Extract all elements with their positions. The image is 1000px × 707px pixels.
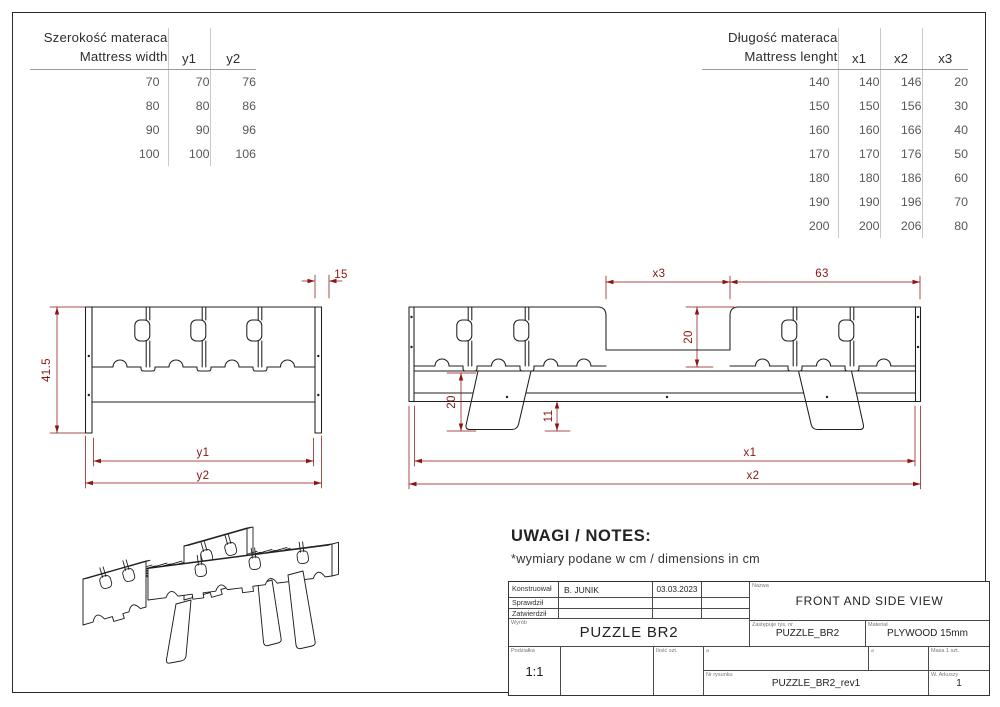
- approver-label: Zatwierdził: [509, 609, 558, 618]
- front-view-drawing: [86, 307, 322, 433]
- material-label: Materiał: [868, 622, 888, 628]
- dim-y2: y2: [197, 470, 210, 482]
- empty-cell: [561, 647, 654, 695]
- drawing-number-label: Nr rysunku: [706, 672, 733, 678]
- signature-cell: [702, 582, 750, 598]
- approver-name-cell: [559, 609, 653, 619]
- projection-symbol-cell: ⌀: [869, 647, 929, 671]
- isometric-view: [83, 527, 339, 663]
- projection-symbol-cell: ⌀: [704, 647, 869, 671]
- replaces-cell: Zastępuje rys. nr PUZZLE_BR2: [750, 621, 866, 647]
- dimension-labels: 41.5 15 y1 y2 x3 63 20 20 11 x1 x2: [41, 268, 829, 482]
- sheet-count-label: W. Arkuszy: [931, 672, 958, 678]
- check-date-cell: [653, 598, 702, 609]
- designer-name: B. JUNIK: [559, 582, 652, 597]
- drawing-sheet: Szerokość materaca Mattress width y1 y2 …: [0, 0, 1000, 707]
- checker-label-cell: Sprawdził: [509, 598, 559, 609]
- drawing-name-label: Nazwa: [752, 583, 769, 589]
- approver-label-cell: Zatwierdził: [509, 609, 559, 619]
- scale-label: Podziałka: [511, 648, 535, 654]
- design-date: 03.03.2023: [653, 582, 701, 597]
- dim-clearance-11: 11: [543, 410, 555, 423]
- quantity-label: Ilość szt.: [656, 648, 677, 654]
- product-label: Wyrób: [511, 620, 527, 626]
- drawing-name-cell: Nazwa FRONT AND SIDE VIEW: [750, 582, 989, 621]
- signature-cell: [702, 598, 750, 609]
- signature-cell: [702, 609, 750, 619]
- material-cell: Materiał PLYWOOD 15mm: [866, 621, 989, 647]
- checker-name-cell: [559, 598, 653, 609]
- mass-cell: Masa 1 szt.: [929, 647, 989, 671]
- dim-front-height: 41.5: [41, 358, 53, 382]
- dim-x2: x2: [747, 470, 760, 482]
- scale-value: 1:1: [509, 647, 560, 695]
- product-cell: Wyrób PUZZLE BR2: [509, 619, 750, 647]
- replaces-label: Zastępuje rys. nr: [752, 622, 793, 628]
- scale-cell: Podziałka 1:1: [509, 647, 561, 695]
- design-date-cell: 03.03.2023: [653, 582, 702, 598]
- title-block: Konstruował B. JUNIK 03.03.2023 Sprawdzi…: [508, 581, 990, 696]
- designer-name-cell: B. JUNIK: [559, 582, 653, 598]
- mass-label: Masa 1 szt.: [931, 648, 959, 654]
- drawing-name: FRONT AND SIDE VIEW: [750, 582, 989, 620]
- dim-x3: x3: [653, 268, 666, 280]
- sheet-count-cell: W. Arkuszy 1: [929, 671, 989, 695]
- notes-heading: UWAGI / NOTES:: [511, 527, 760, 546]
- drawing-number-cell: Nr rysunku PUZZLE_BR2_rev1: [704, 671, 929, 695]
- quantity-cell: Ilość szt.: [654, 647, 704, 695]
- dim-overhang-63: 63: [815, 268, 829, 280]
- projection-symbol: ⌀: [706, 648, 709, 654]
- dim-x1: x1: [744, 447, 757, 459]
- notes-body: *wymiary podane w cm / dimensions in cm: [511, 552, 760, 566]
- dim-panel-height-20: 20: [683, 330, 695, 344]
- designer-label-cell: Konstruował: [509, 582, 559, 598]
- notes-block: UWAGI / NOTES: *wymiary podane w cm / di…: [511, 527, 760, 566]
- side-view-drawing: [409, 307, 921, 430]
- product-name: PUZZLE BR2: [509, 619, 749, 646]
- approve-date-cell: [653, 609, 702, 619]
- dim-y1: y1: [197, 447, 210, 459]
- designer-label: Konstruował: [509, 582, 558, 593]
- projection-symbol: ⌀: [871, 648, 874, 654]
- checker-label: Sprawdził: [509, 598, 558, 607]
- drawing-number: PUZZLE_BR2_rev1: [704, 671, 928, 695]
